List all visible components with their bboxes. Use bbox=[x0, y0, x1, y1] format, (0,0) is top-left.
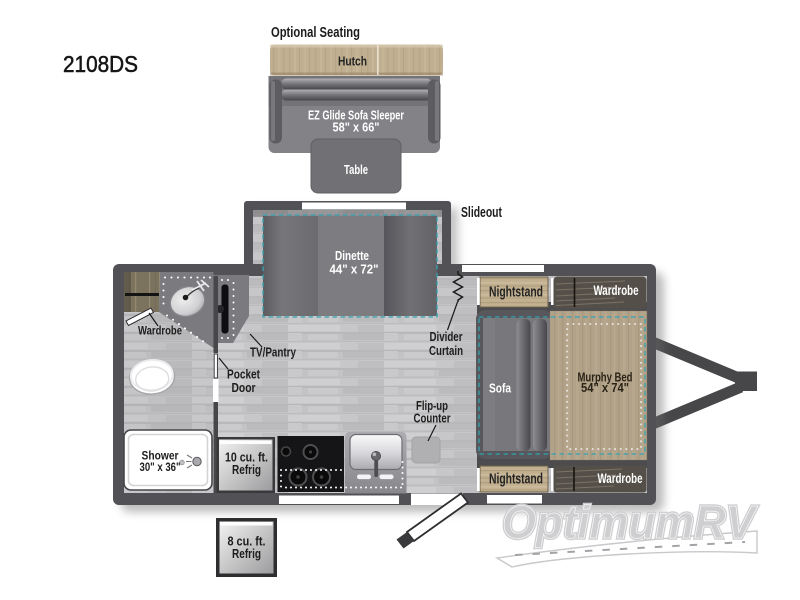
svg-text:Wardrobe: Wardrobe bbox=[138, 326, 182, 338]
svg-text:30" x 36": 30" x 36" bbox=[140, 460, 181, 474]
svg-text:Slideout: Slideout bbox=[461, 204, 502, 221]
svg-text:OptimumRV: OptimumRV bbox=[502, 496, 758, 548]
svg-text:2108DS: 2108DS bbox=[63, 51, 138, 77]
svg-text:Wardrobe: Wardrobe bbox=[598, 470, 643, 486]
svg-text:Curtain: Curtain bbox=[429, 343, 463, 358]
svg-text:Hutch: Hutch bbox=[338, 54, 367, 69]
svg-text:Table: Table bbox=[344, 162, 368, 177]
svg-text:Pocket: Pocket bbox=[227, 368, 261, 382]
svg-text:Optional Seating: Optional Seating bbox=[271, 25, 360, 41]
svg-text:Wardrobe: Wardrobe bbox=[594, 282, 639, 298]
svg-text:44" x 72": 44" x 72" bbox=[330, 262, 379, 277]
svg-text:Door: Door bbox=[232, 381, 256, 395]
svg-text:Counter: Counter bbox=[414, 412, 451, 426]
svg-text:Refrig: Refrig bbox=[232, 463, 261, 477]
svg-text:Nightstand: Nightstand bbox=[489, 472, 543, 488]
svg-text:58" x 66": 58" x 66" bbox=[333, 120, 380, 135]
svg-text:Divider: Divider bbox=[430, 329, 463, 344]
svg-text:54" x 74": 54" x 74" bbox=[581, 380, 629, 395]
svg-text:TV/Pantry: TV/Pantry bbox=[250, 346, 296, 360]
svg-text:Refrig: Refrig bbox=[232, 547, 261, 561]
svg-text:Sofa: Sofa bbox=[489, 381, 512, 396]
svg-text:Nightstand: Nightstand bbox=[489, 285, 543, 301]
